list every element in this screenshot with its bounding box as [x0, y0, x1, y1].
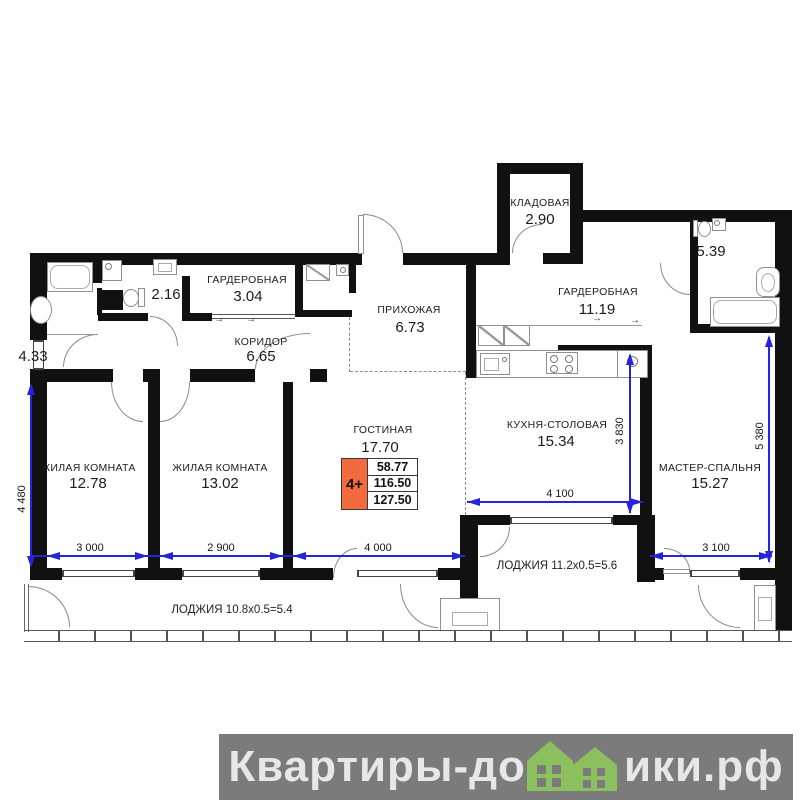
sink-icon — [153, 259, 177, 275]
wall-corridor-bottom-d — [310, 369, 327, 382]
wall-corridor-top-b — [190, 313, 212, 321]
room-label-kitchen: КУХНЯ-СТОЛОВАЯ — [507, 419, 607, 431]
wall-master-bottom-b — [740, 568, 775, 580]
toilet-icon — [698, 221, 711, 237]
stove-icon — [546, 352, 578, 374]
dim-label-4480: 4 480 — [16, 474, 28, 524]
room-area-living1: 12.78 — [69, 475, 107, 492]
wall-left-outer-bottom — [30, 370, 47, 580]
room-area-bath-right: 5.39 — [696, 243, 725, 260]
wc-door-arc — [150, 316, 178, 346]
room-label-livingroom: ГОСТИНАЯ — [353, 424, 412, 436]
dim-label-3100: 3 100 — [702, 542, 730, 554]
wall-hall-closet-bottom — [295, 310, 352, 317]
total-area-value: 127.50 — [368, 492, 417, 509]
livingroom-balcony-door-arc — [333, 548, 357, 578]
entrance-door-arc — [363, 214, 403, 253]
duct-shaft — [102, 290, 123, 310]
dim-arrow — [27, 383, 35, 395]
kitchen-cabinet-icon — [504, 325, 530, 346]
loggia-left-edge — [24, 584, 29, 632]
dim-line-left-vertical — [30, 385, 32, 557]
dim-line-kitchen — [467, 501, 643, 503]
window-living1 — [62, 570, 135, 577]
bath1-bottom-line — [47, 334, 97, 335]
room-area-living2: 13.02 — [201, 475, 239, 492]
wall-bottom-d — [438, 568, 462, 580]
loggia-label-right: ЛОДЖИЯ 11.2x0.5=5.6 — [497, 560, 617, 572]
loggia-left-end-door-arc — [28, 586, 70, 627]
washbasin-icon — [30, 296, 52, 324]
wall-top-mid — [403, 253, 497, 265]
room-label-wardrobe-small: ГАРДЕРОБНАЯ — [207, 274, 287, 286]
dim-arrow — [626, 353, 634, 365]
washing-machine-icon — [712, 218, 726, 231]
window-kitchen — [510, 517, 613, 524]
bath2-door-arc — [660, 263, 690, 295]
wall-under-storage — [543, 253, 583, 264]
washing-machine-icon — [102, 260, 122, 281]
room-area-hallway: 6.73 — [395, 319, 424, 336]
houses-logo-icon — [527, 739, 623, 793]
dim-label-3000: 3 000 — [76, 542, 104, 554]
dim-line-master — [650, 555, 772, 557]
room-area-wardrobe-small: 3.04 — [233, 288, 262, 305]
dim-arrow — [27, 556, 35, 568]
living1-door-arc — [111, 382, 143, 422]
wall-storage-left — [497, 163, 510, 265]
sliding-arrow-icon: → — [214, 314, 224, 325]
wall-bottom-c — [260, 568, 333, 580]
room-area-wardrobe-large: 11.19 — [579, 301, 615, 318]
wall-bottom-b — [135, 568, 182, 580]
wall-master-bottom-a — [648, 568, 664, 580]
washbasin-icon — [756, 267, 780, 297]
dashed-hallway-bottom — [350, 371, 466, 372]
loggia-glazing-rail — [24, 630, 792, 642]
dim-arrow — [626, 502, 634, 514]
room-area-corridor: 6.65 — [246, 348, 275, 365]
kitchen-cabinet-icon — [478, 325, 504, 346]
wall-corridor-top-a — [98, 313, 148, 321]
dim-line-kitchen-v — [629, 355, 631, 513]
dim-label-4100: 4 100 — [546, 488, 574, 500]
dim-arrow — [765, 335, 773, 347]
dim-arrow — [293, 552, 306, 560]
room-label-hallway: ПРИХОЖАЯ — [377, 304, 440, 316]
ac-unit-icon — [754, 585, 776, 631]
kitchen-loggia-door-arc — [480, 527, 510, 557]
room-label-storage: КЛАДОВАЯ — [510, 197, 569, 209]
dim-arrow — [467, 498, 480, 506]
dim-arrow — [135, 552, 148, 560]
wall-storage-right — [570, 163, 583, 262]
electric-panel-icon — [336, 264, 349, 276]
watermark-banner: Квартиры-до ики.рф — [219, 734, 793, 800]
wall-wc-right — [182, 276, 190, 321]
master-loggia-door-arc — [698, 585, 740, 628]
dim-line-bottom — [31, 555, 465, 557]
living2-door-arc — [160, 382, 190, 422]
watermark-text-after: ики.рф — [624, 742, 784, 792]
sliding-arrow-icon: → — [246, 314, 256, 325]
storage-door-arc — [512, 224, 542, 253]
dim-arrow — [765, 551, 773, 563]
room-label-living2: ЖИЛАЯ КОМНАТА — [172, 462, 267, 474]
dim-label-2900: 2 900 — [207, 542, 235, 554]
room-label-living1: ЖИЛАЯ КОМНАТА — [40, 462, 135, 474]
wall-bath1-right-upper — [92, 253, 102, 283]
room-area-master: 15.27 — [691, 475, 729, 492]
dim-arrow — [650, 552, 663, 560]
dim-arrow — [160, 552, 173, 560]
wall-corridor-bottom-c — [190, 369, 255, 382]
dim-label-3830: 3 830 — [614, 406, 626, 456]
bath1-door-arc — [63, 334, 98, 367]
apartment-areas-table: 58.77 116.50 127.50 — [367, 458, 418, 510]
window-master — [690, 570, 740, 577]
dim-label-4000: 4 000 — [364, 542, 392, 554]
dashed-hallway-left — [349, 317, 350, 372]
dim-line-master-v — [768, 337, 770, 562]
wall-hall-closet-right — [349, 263, 356, 293]
wall-bottom-a — [30, 568, 62, 580]
toilet-icon — [123, 289, 139, 307]
dim-arrow — [270, 552, 283, 560]
room-area-storage: 2.90 — [525, 211, 554, 228]
room-label-wardrobe-large: ГАРДЕРОБНАЯ — [558, 286, 638, 298]
wall-kitchen-divider — [466, 258, 476, 378]
window-living2 — [182, 570, 260, 577]
sliding-arrow-icon: → — [630, 315, 640, 326]
wall-wardrobe1-right — [295, 255, 303, 317]
dim-label-5380: 5 380 — [754, 411, 766, 461]
watermark-text-before: Квартиры-до — [228, 742, 526, 792]
loggia-label-left: ЛОДЖИЯ 10.8x0.5=5.4 — [171, 604, 292, 616]
wall-top-east — [583, 210, 775, 222]
room-area-bath-left: 4.33 — [18, 348, 47, 365]
wall-divider-living1 — [148, 382, 160, 570]
livingroom-loggia-door-arc — [400, 584, 438, 628]
wall-corridor-bottom-b — [143, 369, 160, 382]
room-area-kitchen: 15.34 — [537, 433, 575, 450]
kitchen-sink-icon — [480, 353, 510, 375]
apartment-type-badge: 4+ — [341, 458, 368, 510]
wall-corridor-bottom-a — [30, 369, 113, 382]
bathtub-icon — [710, 297, 780, 327]
dim-arrow — [47, 552, 60, 560]
dim-arrow — [452, 552, 465, 560]
room-area-livingroom: 17.70 — [361, 439, 399, 456]
room-area-wc: 2.16 — [151, 286, 180, 303]
master-balcony-door-arc — [664, 548, 690, 571]
wall-divider-living2 — [283, 382, 293, 570]
living-area-value: 58.77 — [368, 459, 417, 476]
dashed-kitchen-livingroom — [465, 372, 466, 515]
window-livingroom — [357, 570, 438, 577]
floor-plan: → → → → — [0, 0, 800, 800]
hall-cabinet-icon — [306, 264, 330, 281]
room-label-corridor: КОРИДОР — [234, 336, 287, 348]
toilet-tank-icon — [138, 288, 145, 307]
bathtub-icon — [47, 262, 93, 292]
room-label-master: МАСТЕР-СПАЛЬНЯ — [659, 462, 761, 474]
area-value: 116.50 — [368, 476, 417, 493]
wall-bath1-right-lower — [97, 288, 102, 315]
